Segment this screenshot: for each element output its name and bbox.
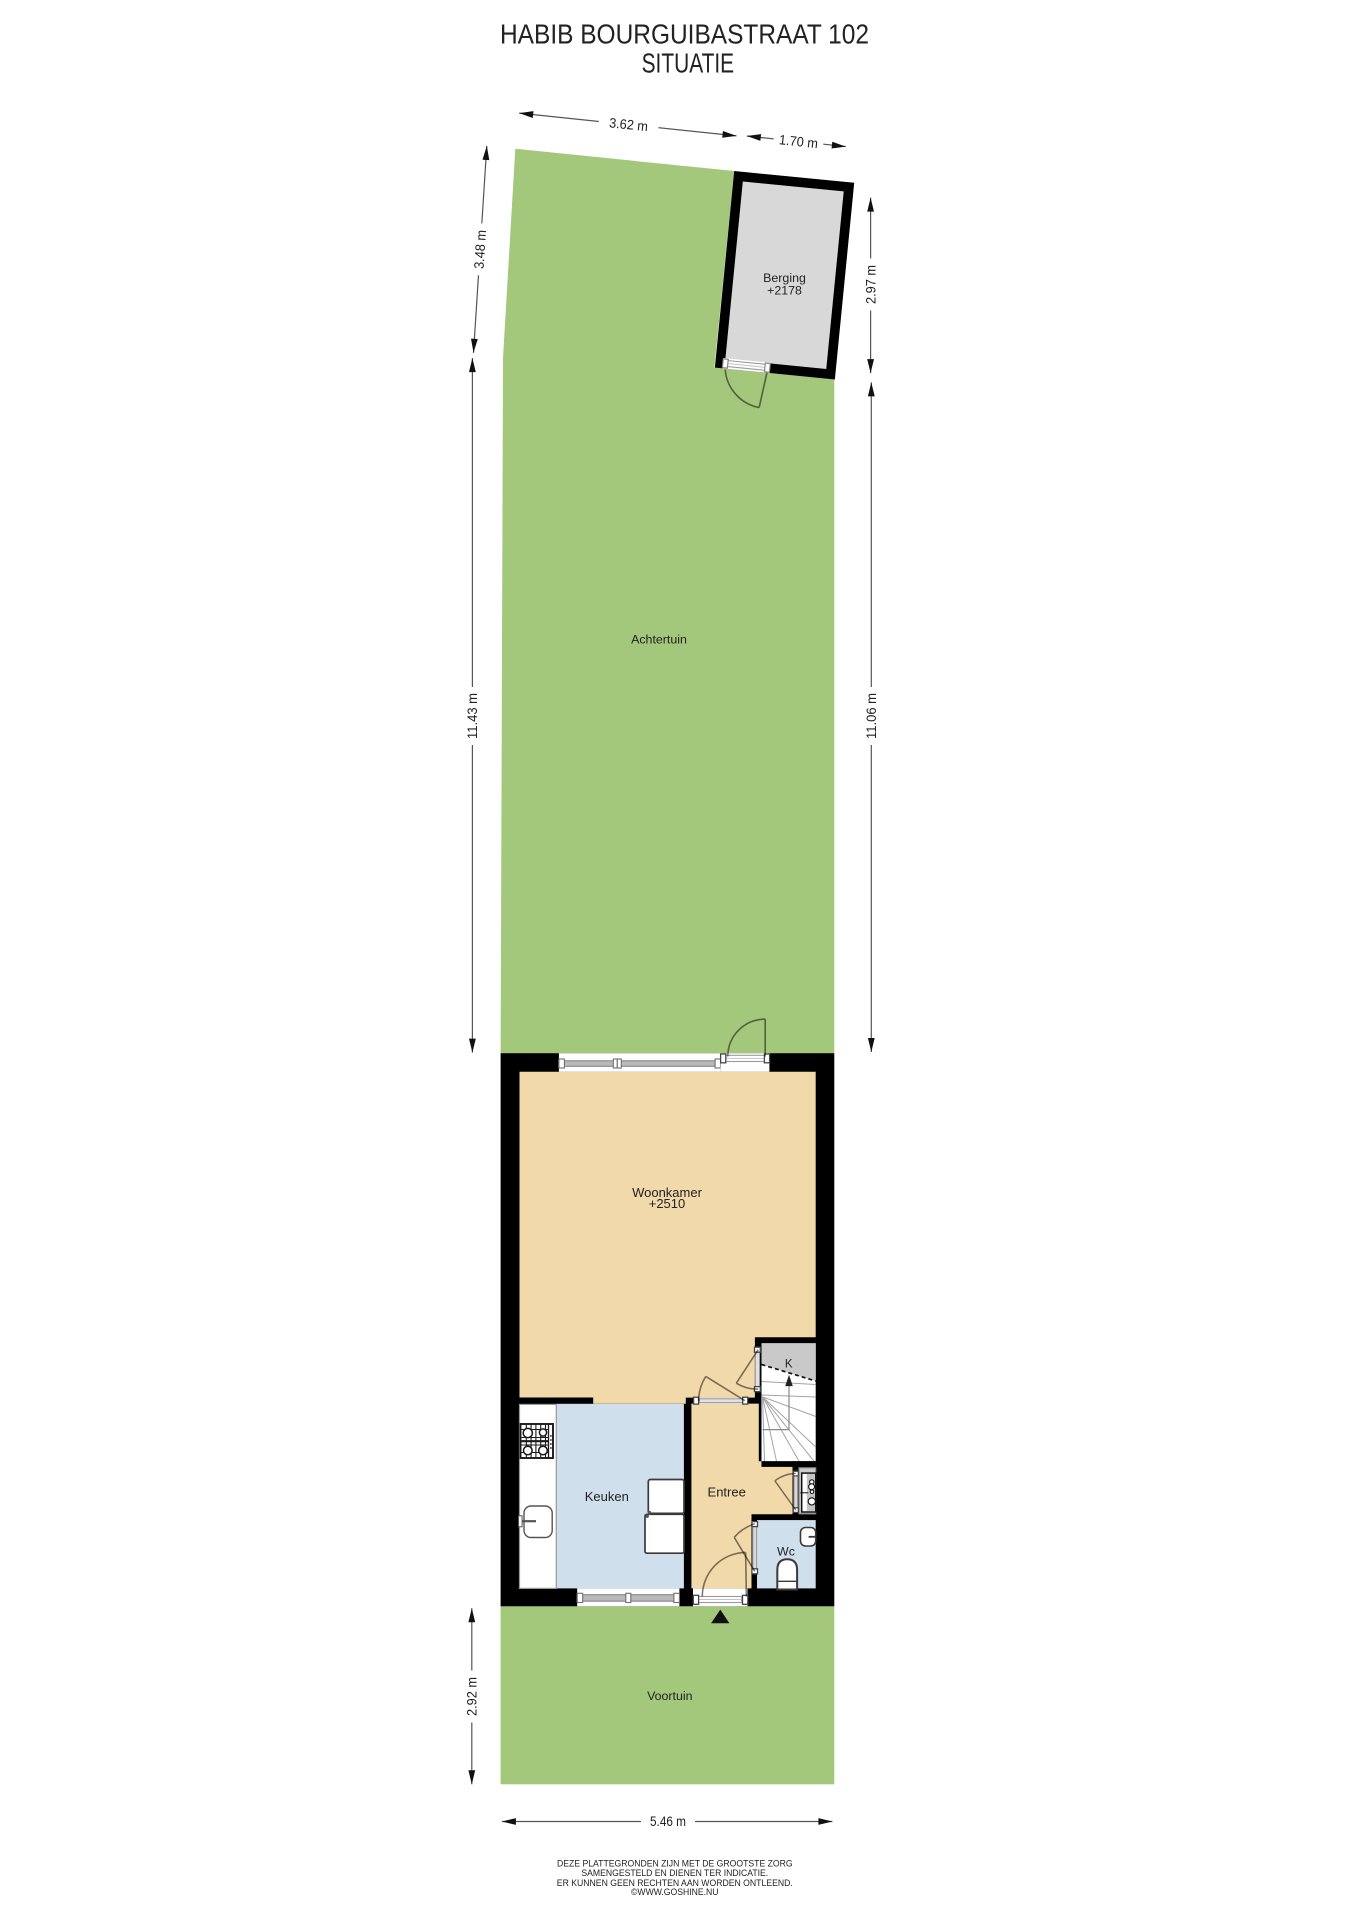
svg-text:Voortuin: Voortuin bbox=[647, 1689, 693, 1703]
svg-text:Keuken: Keuken bbox=[585, 1489, 629, 1504]
svg-text:Wc: Wc bbox=[777, 1544, 795, 1558]
svg-text:11.43 m: 11.43 m bbox=[465, 693, 480, 739]
svg-text:HABIB BOURGUIBASTRAAT 102: HABIB BOURGUIBASTRAAT 102 bbox=[500, 19, 869, 50]
svg-text:SITUATIE: SITUATIE bbox=[642, 47, 735, 78]
svg-text:3.48 m: 3.48 m bbox=[472, 229, 489, 269]
svg-text:©WWW.GOSHINE.NU: ©WWW.GOSHINE.NU bbox=[631, 1887, 719, 1897]
svg-text:+2510: +2510 bbox=[649, 1196, 686, 1211]
svg-text:5.46 m: 5.46 m bbox=[650, 1813, 686, 1829]
svg-text:K: K bbox=[785, 1359, 793, 1371]
svg-text:2.92 m: 2.92 m bbox=[465, 1677, 480, 1716]
svg-text:Achtertuin: Achtertuin bbox=[631, 632, 687, 646]
svg-text:Entree: Entree bbox=[708, 1484, 746, 1499]
svg-text:11.06 m: 11.06 m bbox=[864, 693, 879, 739]
svg-text:+2178: +2178 bbox=[767, 283, 802, 297]
svg-text:2.97 m: 2.97 m bbox=[863, 265, 878, 304]
svg-text:SAMENGESTELD EN DIENEN TER IND: SAMENGESTELD EN DIENEN TER INDICATIE. bbox=[581, 1868, 768, 1878]
